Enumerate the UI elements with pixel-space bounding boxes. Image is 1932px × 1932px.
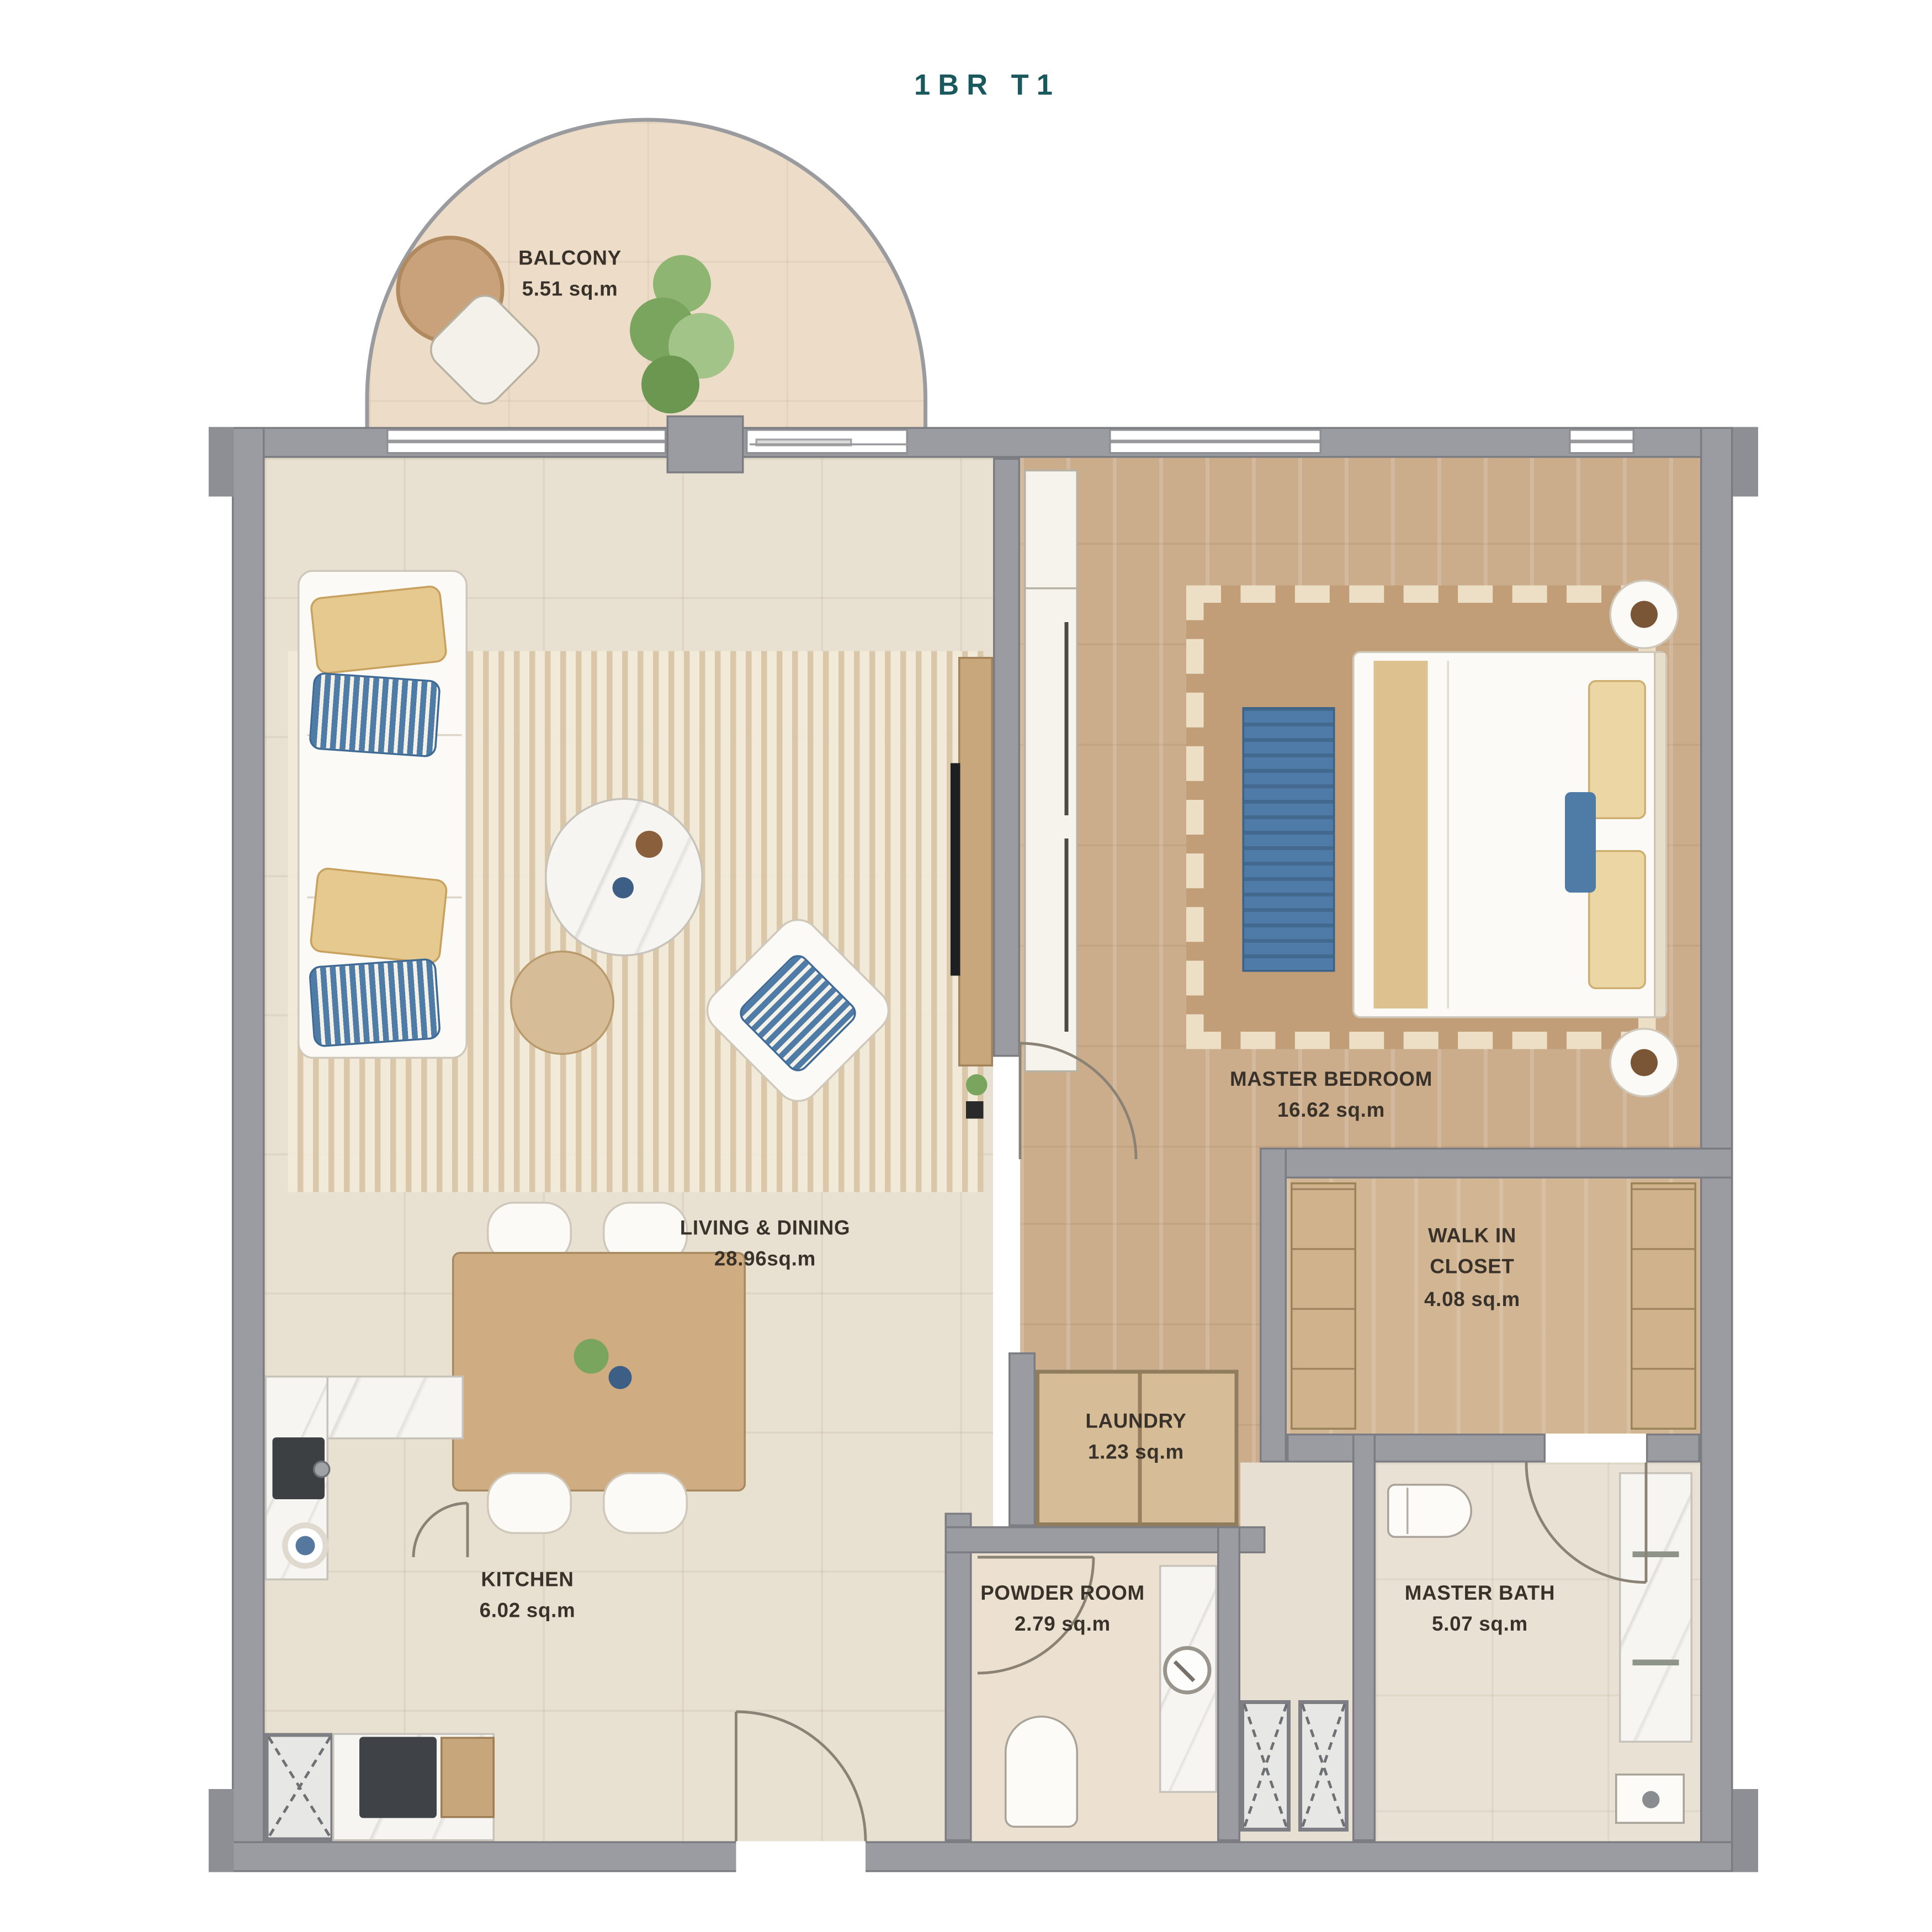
shower-bar bbox=[1633, 1552, 1679, 1558]
room-label-laundry: LAUNDRY 1.23 sq.m bbox=[1085, 1406, 1186, 1469]
room-name: MASTER BATH bbox=[1405, 1579, 1555, 1610]
room-name: BALCONY bbox=[518, 243, 622, 275]
room-area: 5.07 sq.m bbox=[1405, 1610, 1555, 1641]
plant-leaf bbox=[641, 355, 699, 413]
bed-sheet-line bbox=[1447, 661, 1450, 1009]
powder-sink bbox=[1163, 1646, 1212, 1695]
room-name: POWDER ROOM bbox=[980, 1579, 1145, 1610]
floor-plan: 1BR T1 bbox=[0, 0, 1932, 1932]
shower bbox=[1619, 1472, 1692, 1743]
room-area: 1.23 sq.m bbox=[1085, 1438, 1186, 1469]
room-name: WALK IN CLOSET bbox=[1409, 1221, 1536, 1284]
dining-centerpiece bbox=[609, 1366, 632, 1389]
room-area: 28.96sq.m bbox=[680, 1245, 851, 1276]
bed-pillow-blue bbox=[1565, 792, 1596, 893]
closet-wardrobe-right bbox=[1631, 1182, 1696, 1430]
plant-icon bbox=[630, 255, 734, 417]
dining-centerpiece bbox=[574, 1339, 609, 1374]
coffee-table-decor bbox=[636, 831, 663, 858]
pillow-blue-striped bbox=[309, 672, 441, 758]
wall-closet-bath bbox=[1287, 1434, 1546, 1463]
wall-closet-bath bbox=[1646, 1434, 1700, 1463]
window-bedroom bbox=[1109, 429, 1321, 454]
dining-chair bbox=[487, 1472, 572, 1534]
powder-toilet bbox=[1005, 1716, 1078, 1828]
window-bedroom-small bbox=[1569, 429, 1634, 454]
closet-wardrobe-left bbox=[1291, 1182, 1356, 1430]
console-plant-icon bbox=[966, 1074, 988, 1096]
wall-living-suite bbox=[993, 458, 1020, 1057]
wall-pilaster bbox=[1733, 427, 1759, 497]
dining-chair bbox=[603, 1472, 688, 1534]
room-label-kitchen: KITCHEN 6.02 sq.m bbox=[480, 1565, 576, 1628]
nightstand bbox=[1610, 580, 1679, 649]
nightstand-decor bbox=[1631, 601, 1658, 628]
cooktop-plate bbox=[282, 1522, 328, 1569]
bed bbox=[1352, 651, 1668, 1018]
bed-pillow bbox=[1588, 850, 1646, 989]
window-living bbox=[386, 429, 667, 454]
stove bbox=[359, 1737, 437, 1818]
coffee-table-decor bbox=[613, 877, 634, 899]
side-table bbox=[510, 951, 614, 1055]
kitchen-cabinet bbox=[440, 1737, 495, 1818]
toilet-tank-line bbox=[1406, 1488, 1409, 1534]
wardrobe-divider bbox=[1026, 587, 1076, 590]
bath-vanity bbox=[1615, 1774, 1685, 1824]
room-area: 6.02 sq.m bbox=[480, 1596, 576, 1628]
wall-powder-left bbox=[945, 1513, 972, 1841]
wall-bottom bbox=[232, 1841, 1733, 1872]
shaft-box bbox=[1240, 1700, 1291, 1832]
nightstand-decor bbox=[1631, 1049, 1658, 1076]
tv-console bbox=[958, 657, 993, 1066]
wardrobe-handle bbox=[1065, 838, 1069, 1032]
room-area: 2.79 sq.m bbox=[980, 1610, 1145, 1641]
room-area: 5.51 sq.m bbox=[518, 275, 622, 306]
bath-toilet bbox=[1387, 1484, 1472, 1538]
wall-pilaster bbox=[209, 427, 234, 497]
room-area: 16.62 sq.m bbox=[1230, 1096, 1432, 1127]
room-label-master-bath: MASTER BATH 5.07 sq.m bbox=[1405, 1579, 1555, 1642]
room-label-powder-room: POWDER ROOM 2.79 sq.m bbox=[980, 1579, 1145, 1642]
wardrobe-handle bbox=[1065, 622, 1069, 815]
bed-bench bbox=[1243, 707, 1335, 972]
wall-bedroom-closet bbox=[1260, 1148, 1733, 1179]
dining-table bbox=[452, 1252, 746, 1492]
room-name: KITCHEN bbox=[480, 1565, 576, 1596]
bed-pillow bbox=[1588, 680, 1646, 819]
kitchen-faucet bbox=[313, 1461, 331, 1478]
page-title: 1BR T1 bbox=[914, 70, 1060, 103]
armchair-pillow bbox=[735, 951, 861, 1076]
shower-bar bbox=[1633, 1660, 1679, 1666]
wall-corridor-closet bbox=[1260, 1148, 1287, 1463]
room-area: 4.08 sq.m bbox=[1409, 1284, 1536, 1315]
room-label-walk-in-closet: WALK IN CLOSET 4.08 sq.m bbox=[1409, 1221, 1536, 1315]
wall-left bbox=[232, 427, 265, 1872]
pillow-blue-striped bbox=[309, 958, 442, 1048]
shaft-box bbox=[265, 1733, 335, 1841]
pillow-yellow bbox=[309, 585, 448, 675]
coffee-table bbox=[545, 798, 703, 957]
sliding-door-panel bbox=[756, 439, 852, 447]
entry-door-opening bbox=[736, 1841, 866, 1872]
sliding-door-balcony bbox=[746, 429, 908, 454]
wall-balcony-pier bbox=[667, 416, 744, 474]
wall-bath-left bbox=[1352, 1434, 1376, 1841]
wall-pilaster bbox=[209, 1789, 234, 1872]
room-name: LAUNDRY bbox=[1085, 1406, 1186, 1438]
tv bbox=[951, 763, 960, 976]
nightstand bbox=[1610, 1028, 1679, 1097]
room-name: LIVING & DINING bbox=[680, 1213, 851, 1245]
bed-blanket bbox=[1374, 661, 1428, 1009]
pillow-yellow bbox=[309, 867, 449, 965]
vanity-faucet bbox=[1642, 1791, 1660, 1809]
room-name: MASTER BEDROOM bbox=[1230, 1065, 1432, 1096]
console-decor bbox=[966, 1101, 984, 1119]
wall-pilaster bbox=[1733, 1789, 1759, 1872]
wall-powder-right bbox=[1217, 1526, 1240, 1841]
shaft-box bbox=[1298, 1700, 1349, 1832]
hall-wardrobe bbox=[1024, 470, 1078, 1073]
room-label-balcony: BALCONY 5.51 sq.m bbox=[518, 243, 622, 306]
plate-decor bbox=[296, 1536, 315, 1556]
wall-laundry-left bbox=[1009, 1352, 1036, 1526]
room-label-living-dining: LIVING & DINING 28.96sq.m bbox=[680, 1213, 851, 1276]
bed-headboard bbox=[1654, 653, 1665, 1016]
room-label-master-bedroom: MASTER BEDROOM 16.62 sq.m bbox=[1230, 1065, 1432, 1128]
